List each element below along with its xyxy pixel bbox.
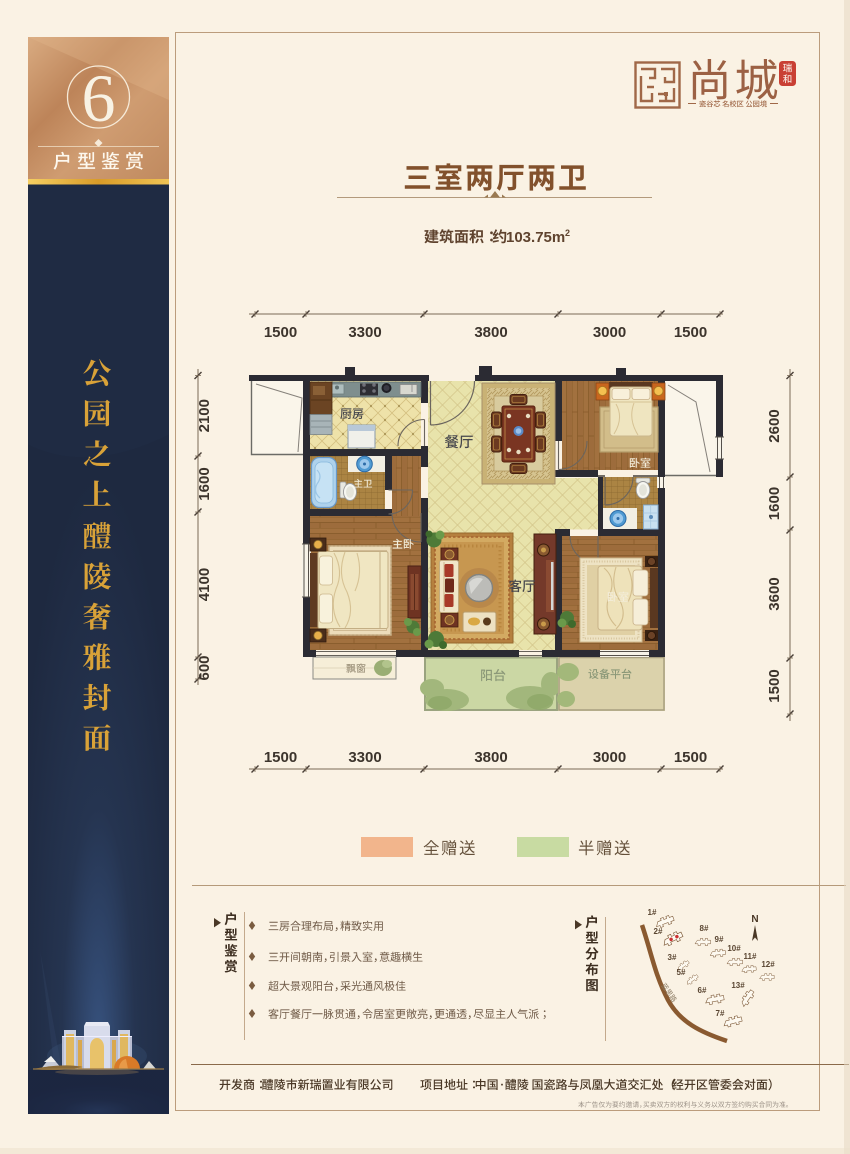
svg-text:5#: 5# xyxy=(677,968,686,977)
svg-text:3#: 3# xyxy=(668,953,677,962)
svg-text:1500: 1500 xyxy=(674,324,707,341)
svg-text:1500: 1500 xyxy=(264,324,297,341)
svg-text:1600: 1600 xyxy=(766,487,783,520)
svg-text:103.75m: 103.75m xyxy=(506,229,565,246)
svg-text:9#: 9# xyxy=(715,935,724,944)
svg-text:4100: 4100 xyxy=(196,568,213,601)
svg-text:7#: 7# xyxy=(716,1009,725,1018)
svg-text:3300: 3300 xyxy=(348,749,381,766)
svg-text:3000: 3000 xyxy=(593,749,626,766)
svg-text:2600: 2600 xyxy=(766,409,783,442)
svg-text:3300: 3300 xyxy=(348,324,381,341)
svg-text:13#: 13# xyxy=(731,981,745,990)
svg-text:3600: 3600 xyxy=(766,577,783,610)
svg-text:2100: 2100 xyxy=(196,399,213,432)
svg-text:6: 6 xyxy=(82,60,116,136)
svg-text:2#: 2# xyxy=(654,927,663,936)
svg-text:11#: 11# xyxy=(744,952,757,961)
svg-text:1500: 1500 xyxy=(766,669,783,702)
svg-text:N: N xyxy=(751,914,758,925)
svg-text:10#: 10# xyxy=(727,944,741,953)
svg-text:8#: 8# xyxy=(700,924,709,933)
svg-text:600: 600 xyxy=(196,655,213,680)
svg-text:6#: 6# xyxy=(698,986,707,995)
svg-text:1600: 1600 xyxy=(196,467,213,500)
svg-text:1500: 1500 xyxy=(264,749,297,766)
svg-text:1#: 1# xyxy=(648,908,657,917)
svg-text:3000: 3000 xyxy=(593,324,626,341)
svg-text:3800: 3800 xyxy=(474,324,507,341)
svg-text:2: 2 xyxy=(565,228,570,238)
svg-text:1500: 1500 xyxy=(674,749,707,766)
svg-text:3800: 3800 xyxy=(474,749,507,766)
svg-text:12#: 12# xyxy=(761,960,775,969)
